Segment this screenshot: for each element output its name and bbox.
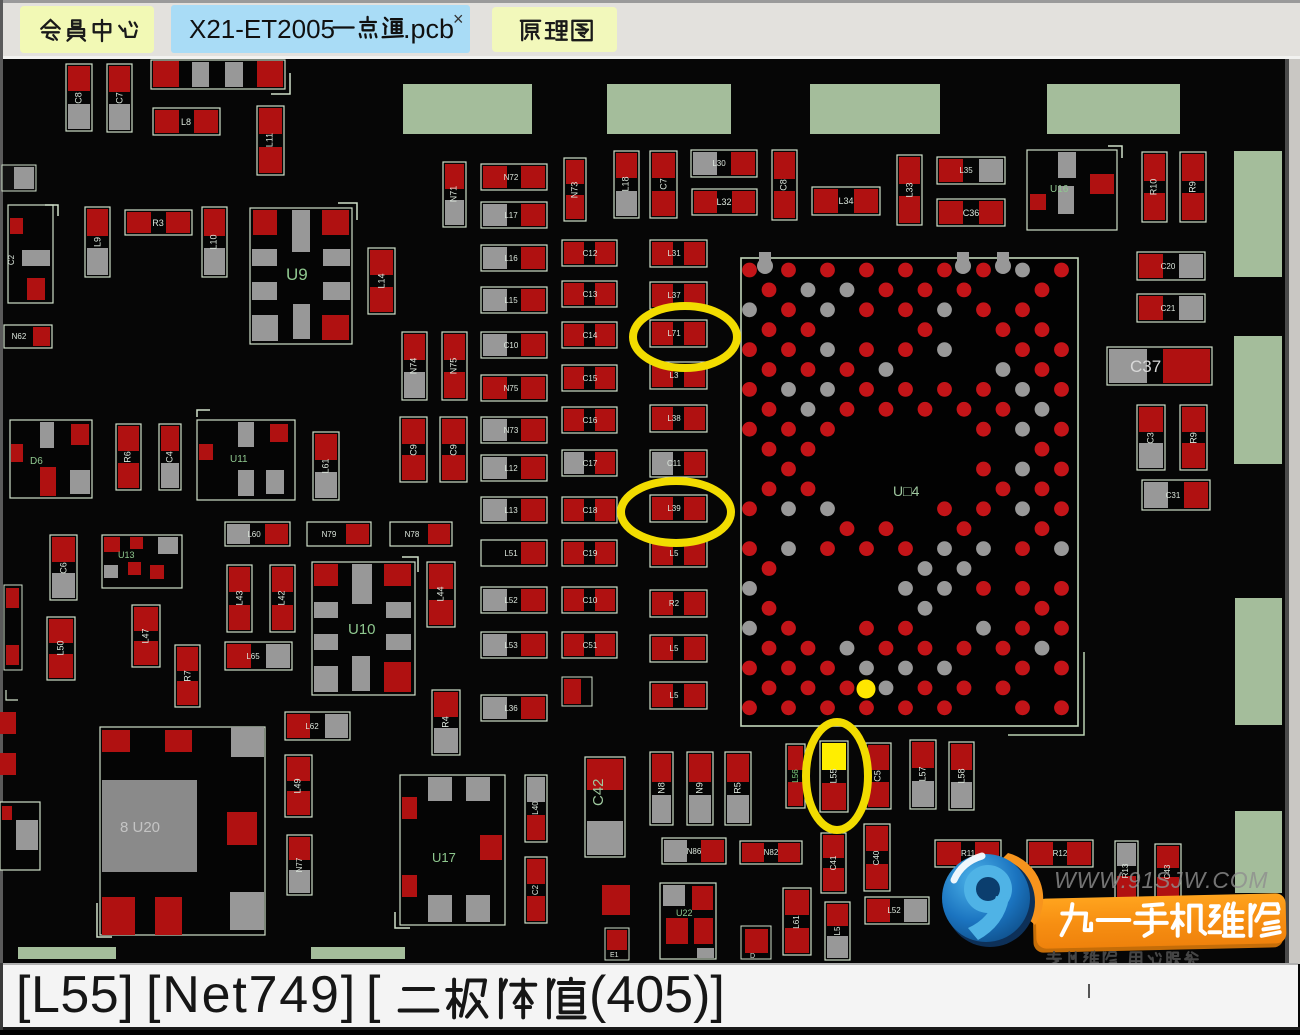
svg-text:U11: U11 [230,454,248,465]
svg-text:R7: R7 [182,670,192,682]
svg-text:L8: L8 [181,117,191,127]
svg-text:L18: L18 [620,176,630,191]
svg-text:C36: C36 [963,208,980,218]
svg-text:L51: L51 [504,549,518,558]
svg-text:R5: R5 [732,782,742,794]
svg-text:L61: L61 [792,915,801,929]
svg-text:(405)]: (405)] [589,966,725,1024]
svg-text:[Net749]: [Net749] [146,966,357,1024]
svg-text:C4: C4 [164,451,174,463]
svg-text:N77: N77 [295,857,304,872]
svg-text:E1: E1 [610,952,619,959]
svg-text:C8: C8 [73,92,83,104]
svg-text:L14: L14 [376,273,386,288]
svg-text:[: [ [366,966,381,1024]
svg-text:L50: L50 [55,640,65,655]
svg-text:L30: L30 [712,159,726,168]
svg-text:C10: C10 [583,596,598,605]
svg-text:N62: N62 [12,332,27,341]
svg-text:L31: L31 [667,249,681,258]
svg-text:C11: C11 [667,459,682,468]
svg-text:R6: R6 [122,451,132,463]
svg-text:C14: C14 [583,331,598,340]
svg-text:L61: L61 [320,458,330,473]
svg-text:C51: C51 [583,641,598,650]
svg-text:L5: L5 [833,926,842,935]
svg-text:C40: C40 [872,850,881,865]
svg-text:WWW.91SJW.COM: WWW.91SJW.COM [1054,867,1268,893]
svg-text:N74: N74 [408,358,418,375]
svg-text:C9: C9 [448,444,458,456]
svg-text:C42: C42 [590,778,607,806]
svg-text:C21: C21 [1161,304,1176,313]
svg-text:C31: C31 [1166,491,1181,500]
svg-text:L36: L36 [504,704,518,713]
svg-text:C16: C16 [583,416,598,425]
svg-text:L12: L12 [504,464,518,473]
svg-text:R10: R10 [1148,179,1158,196]
svg-text:L53: L53 [504,641,518,650]
svg-text:C7: C7 [658,178,668,190]
svg-text:8 U20: 8 U20 [120,819,160,836]
svg-text:L16: L16 [504,254,518,263]
svg-text:R9: R9 [1187,181,1197,193]
svg-text:L65: L65 [246,652,260,661]
svg-text:C2: C2 [531,884,540,895]
svg-text:L39: L39 [667,504,681,513]
svg-text:L52: L52 [504,596,518,605]
svg-text:U10: U10 [348,621,376,638]
svg-text:L38: L38 [667,414,681,423]
svg-text:L57: L57 [917,766,927,781]
svg-text:C10: C10 [504,341,519,350]
svg-text:C20: C20 [1161,262,1176,271]
svg-text:C6: C6 [58,562,68,574]
svg-text:C8: C8 [778,179,788,191]
svg-text:L56: L56 [791,769,800,783]
svg-text:L44: L44 [435,586,445,601]
svg-text:L34: L34 [838,196,853,206]
svg-text:N75: N75 [448,358,458,375]
svg-text:N82: N82 [764,848,779,857]
svg-text:L5: L5 [670,549,679,558]
svg-text:U16: U16 [1050,184,1069,195]
svg-text:C41: C41 [829,855,838,870]
svg-text:R9: R9 [1188,432,1198,444]
svg-text:L58: L58 [956,768,966,783]
svg-text:L42: L42 [276,590,286,605]
svg-text:L47: L47 [140,628,150,643]
svg-text:L37: L37 [667,291,681,300]
svg-text:L10: L10 [208,234,218,249]
svg-text:×: × [453,9,464,29]
svg-text:R2: R2 [669,599,680,608]
svg-text:N78: N78 [405,530,420,539]
svg-text:[L55]: [L55] [16,966,134,1024]
svg-text:U22: U22 [676,908,693,918]
svg-text:.pcb: .pcb [403,14,454,44]
svg-text:L5: L5 [670,644,679,653]
svg-text:L17: L17 [504,211,518,220]
svg-text:C18: C18 [583,506,598,515]
svg-text:L9: L9 [92,237,102,247]
svg-text:L62: L62 [305,722,319,731]
svg-text:L52: L52 [887,906,901,915]
svg-text:L71: L71 [667,329,681,338]
svg-text:N8: N8 [656,782,666,794]
svg-text:N75: N75 [504,384,519,393]
svg-text:N72: N72 [504,173,519,182]
svg-text:C7: C7 [114,92,124,104]
svg-text:L33: L33 [904,182,914,197]
svg-text:L49: L49 [292,778,302,793]
svg-text:C15: C15 [583,374,598,383]
svg-text:U17: U17 [432,850,456,865]
svg-text:C3: C3 [1145,432,1155,444]
svg-text:L35: L35 [959,166,973,175]
svg-text:U□4: U□4 [893,483,920,499]
svg-text:L40: L40 [531,801,540,815]
svg-text:D6: D6 [30,456,43,467]
svg-text:L13: L13 [504,506,518,515]
svg-text:N73: N73 [569,182,579,199]
svg-text:N79: N79 [322,530,337,539]
svg-text:L43: L43 [234,590,244,605]
svg-text:L11: L11 [264,133,274,147]
svg-text:C13: C13 [583,290,598,299]
svg-text:C2: C2 [7,254,16,265]
svg-text:C9: C9 [408,444,418,456]
svg-text:N86: N86 [687,847,702,856]
svg-text:C19: C19 [583,549,598,558]
svg-text:L5: L5 [670,691,679,700]
svg-text:L60: L60 [247,530,261,539]
svg-text:C12: C12 [583,249,598,258]
svg-text:D: D [750,953,755,960]
svg-text:N71: N71 [448,186,458,203]
svg-text:N9: N9 [694,782,704,794]
svg-text:U13: U13 [118,550,135,560]
svg-text:C5: C5 [872,770,882,782]
svg-text:L3: L3 [670,371,679,380]
svg-text:R12: R12 [1053,849,1068,858]
svg-text:C37: C37 [1130,357,1161,376]
svg-text:N73: N73 [504,426,519,435]
svg-text:L55: L55 [828,768,838,783]
svg-text:L15: L15 [504,296,518,305]
svg-text:X21-ET2005: X21-ET2005 [189,14,335,44]
svg-text:C17: C17 [583,459,598,468]
svg-text:L32: L32 [716,197,731,207]
svg-text:U9: U9 [286,265,308,284]
svg-text:R3: R3 [152,218,164,228]
svg-text:R4: R4 [440,716,450,728]
